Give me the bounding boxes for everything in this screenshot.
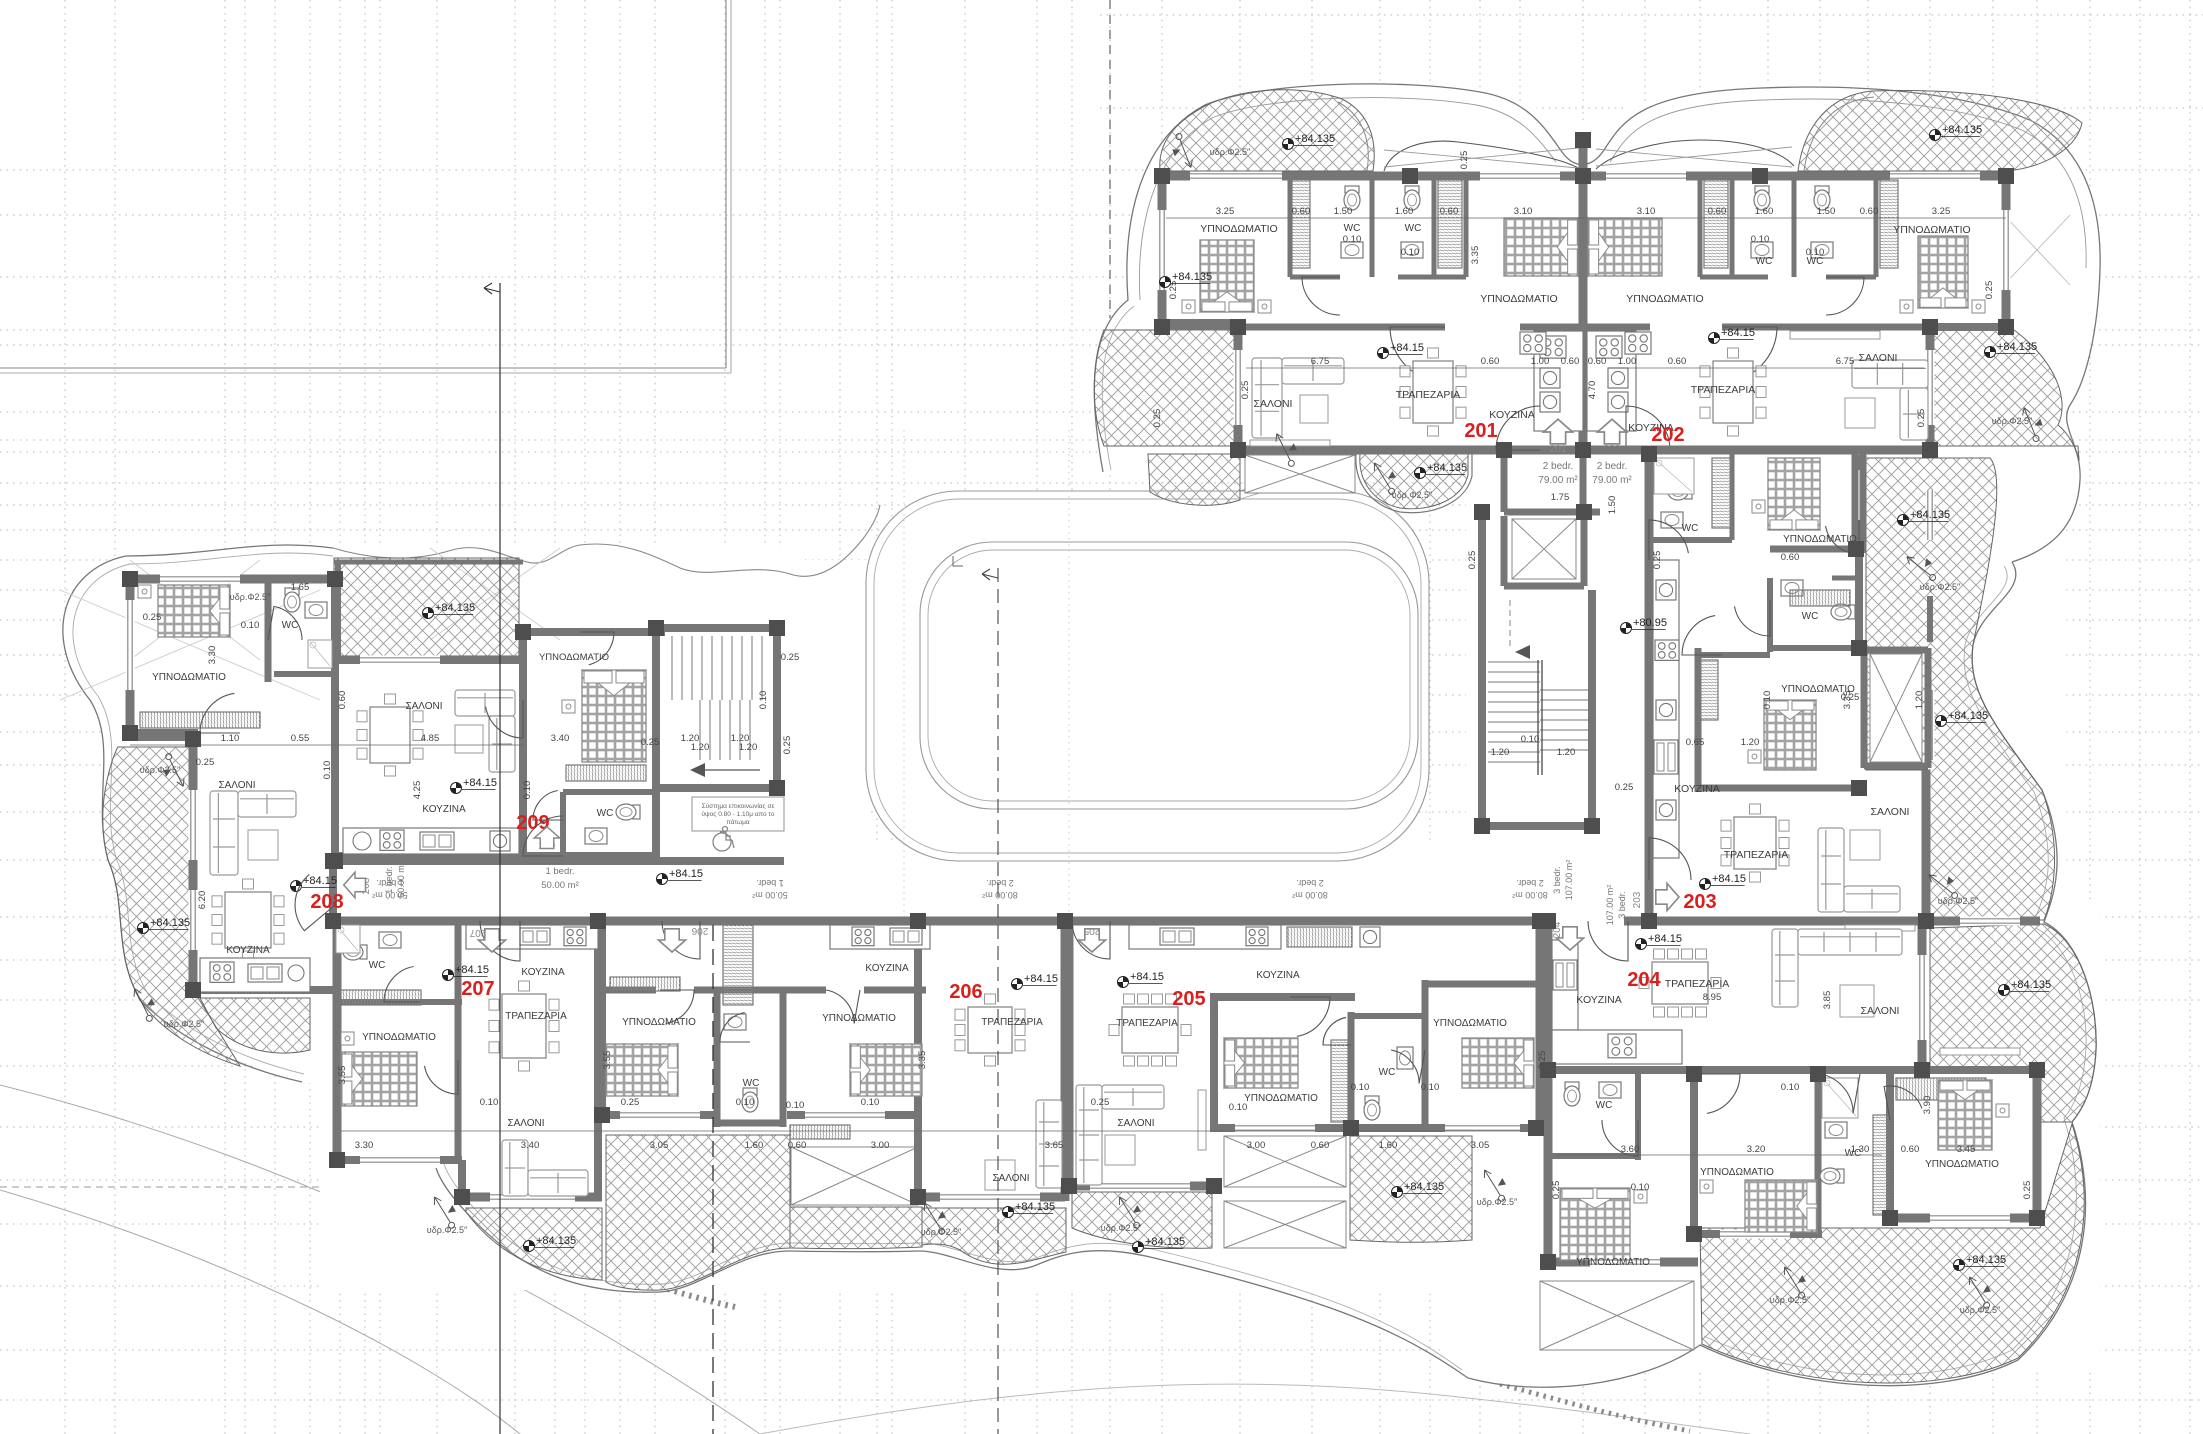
svg-text:0.25: 0.25 [1467, 551, 1478, 570]
svg-text:+84.135: +84.135 [1910, 509, 1950, 521]
svg-text:0.10: 0.10 [1343, 234, 1362, 245]
svg-text:0.65: 0.65 [1686, 737, 1705, 748]
svg-text:0.60: 0.60 [1481, 356, 1500, 367]
svg-text:+84.135: +84.135 [1295, 133, 1335, 145]
svg-text:+84.15: +84.15 [303, 875, 337, 887]
svg-text:0.25: 0.25 [641, 737, 660, 748]
svg-text:206: 206 [949, 981, 982, 1003]
svg-text:0.10: 0.10 [1351, 1082, 1370, 1093]
svg-text:207: 207 [469, 927, 486, 938]
svg-text:ΣΑΛΟΝΙ: ΣΑΛΟΝΙ [1254, 398, 1293, 410]
svg-text:+84.15: +84.15 [1130, 971, 1164, 983]
svg-text:3.40: 3.40 [551, 733, 570, 744]
svg-text:+84.135: +84.135 [536, 1235, 576, 1247]
svg-text:0.25: 0.25 [781, 652, 800, 663]
svg-text:+84.135: +84.135 [1427, 462, 1467, 474]
svg-text:Σύστημα επικοινωνίας σε: Σύστημα επικοινωνίας σε [702, 802, 775, 810]
svg-text:ΚΟΥΖΙΝΑ: ΚΟΥΖΙΝΑ [521, 967, 565, 978]
svg-text:WC: WC [1596, 1100, 1613, 1111]
svg-text:ΚΟΥΖΙΝΑ: ΚΟΥΖΙΝΑ [865, 963, 909, 974]
svg-text:0.25: 0.25 [1091, 1097, 1110, 1108]
svg-text:0.60: 0.60 [1860, 206, 1879, 217]
svg-text:3.30: 3.30 [207, 646, 218, 665]
svg-text:1 bedr.: 1 bedr. [384, 866, 394, 894]
svg-text:207: 207 [461, 978, 494, 1000]
svg-text:3.10: 3.10 [1637, 206, 1656, 217]
svg-text:ΣΑΛΟΝΙ: ΣΑΛΟΝΙ [218, 780, 255, 791]
svg-text:+84.135: +84.135 [2011, 979, 2051, 991]
svg-text:0.60: 0.60 [1588, 356, 1607, 367]
svg-text:3.45: 3.45 [1957, 1144, 1976, 1155]
svg-text:3.00: 3.00 [871, 1140, 890, 1151]
svg-text:1 bedr.: 1 bedr. [756, 878, 784, 888]
svg-text:+84.15: +84.15 [669, 868, 703, 880]
svg-text:1.50: 1.50 [1817, 206, 1836, 217]
svg-text:50.00 m²: 50.00 m² [541, 880, 579, 891]
svg-text:ΥΠΝΟΔΩΜΑΤΙΟ: ΥΠΝΟΔΩΜΑΤΙΟ [1480, 293, 1557, 305]
svg-text:+84.15: +84.15 [1390, 342, 1424, 354]
svg-text:80.00 m²: 80.00 m² [1292, 890, 1328, 900]
svg-text:0.10: 0.10 [1781, 1082, 1800, 1093]
svg-text:ΥΠΝΟΔΩΜΑΤΙΟ: ΥΠΝΟΔΩΜΑΤΙΟ [1433, 1018, 1507, 1029]
svg-text:3.10: 3.10 [1514, 206, 1533, 217]
svg-text:+80.95: +80.95 [1633, 617, 1667, 629]
svg-text:0.60: 0.60 [337, 691, 348, 710]
svg-text:0.25: 0.25 [1240, 381, 1251, 400]
svg-text:υδρ.Φ2.5″: υδρ.Φ2.5″ [164, 1019, 205, 1029]
svg-text:205: 205 [1172, 988, 1205, 1010]
svg-text:0.10: 0.10 [758, 691, 769, 710]
svg-text:3.40: 3.40 [521, 1140, 540, 1151]
svg-text:ύψος 0.80 - 1.10μ απο το: ύψος 0.80 - 1.10μ απο το [701, 810, 774, 818]
svg-text:ΤΡΑΠΕΖΑΡΙΑ: ΤΡΑΠΕΖΑΡΙΑ [1665, 978, 1730, 990]
svg-text:0.10: 0.10 [736, 1097, 755, 1108]
svg-text:ΤΡΑΠΕΖΑΡΙΑ: ΤΡΑΠΕΖΑΡΙΑ [981, 1017, 1043, 1028]
svg-text:ΥΠΝΟΔΩΜΑΤΙΟ: ΥΠΝΟΔΩΜΑΤΙΟ [1783, 534, 1857, 545]
svg-text:0.60: 0.60 [788, 1140, 807, 1151]
svg-text:+84.135: +84.135 [1145, 1236, 1185, 1248]
svg-text:1.50: 1.50 [1334, 206, 1353, 217]
svg-text:WC: WC [1405, 223, 1422, 234]
svg-text:0.10: 0.10 [241, 620, 260, 631]
svg-text:υδρ.Φ2.5″: υδρ.Φ2.5″ [1938, 896, 1979, 906]
svg-text:ΚΟΥΖΙΝΑ: ΚΟΥΖΙΝΑ [1576, 994, 1621, 1006]
svg-text:0.10: 0.10 [1401, 247, 1420, 258]
svg-text:3 bedr.: 3 bedr. [1617, 891, 1627, 919]
svg-text:3.25: 3.25 [1932, 206, 1951, 217]
svg-text:υδρ.Φ2.5″: υδρ.Φ2.5″ [230, 592, 271, 602]
svg-text:1.20: 1.20 [739, 742, 758, 753]
svg-text:0.60: 0.60 [1561, 356, 1580, 367]
svg-text:ΤΡΑΠΕΖΑΡΙΑ: ΤΡΑΠΕΖΑΡΙΑ [505, 1011, 567, 1022]
svg-text:ΣΑΛΟΝΙ: ΣΑΛΟΝΙ [1861, 1005, 1900, 1017]
svg-text:0.25: 0.25 [1916, 409, 1927, 428]
svg-text:1.60: 1.60 [1379, 1140, 1398, 1151]
svg-text:0.10: 0.10 [480, 1097, 499, 1108]
svg-text:203: 203 [1632, 891, 1643, 908]
svg-text:1.75: 1.75 [1551, 492, 1570, 503]
svg-text:ΥΠΝΟΔΩΜΑΤΙΟ: ΥΠΝΟΔΩΜΑΤΙΟ [1893, 224, 1970, 236]
svg-text:υδρ.Φ2.5″: υδρ.Φ2.5″ [1920, 582, 1961, 592]
svg-text:8.95: 8.95 [1703, 992, 1722, 1003]
svg-text:0.10: 0.10 [522, 781, 533, 800]
svg-text:1.20: 1.20 [1914, 691, 1925, 710]
svg-text:+84.135: +84.135 [1966, 1254, 2006, 1266]
svg-text:ΤΡΑΠΕΖΑΡΙΑ: ΤΡΑΠΕΖΑΡΙΑ [1116, 1018, 1178, 1029]
svg-text:ΥΠΝΟΔΩΜΑΤΙΟ: ΥΠΝΟΔΩΜΑΤΙΟ [539, 652, 609, 663]
svg-text:1.00: 1.00 [1618, 356, 1637, 367]
svg-text:WC: WC [1379, 1067, 1396, 1078]
svg-text:0.25: 0.25 [621, 1097, 640, 1108]
svg-text:0.10: 0.10 [1521, 734, 1540, 745]
svg-text:WC: WC [282, 620, 299, 631]
svg-text:ΥΠΝΟΔΩΜΑΤΙΟ: ΥΠΝΟΔΩΜΑΤΙΟ [822, 1013, 896, 1024]
svg-text:1 bedr.: 1 bedr. [545, 866, 574, 877]
svg-text:3.30: 3.30 [355, 1140, 374, 1151]
svg-text:0.25: 0.25 [2022, 1181, 2033, 1200]
svg-text:υδρ.Φ2.5″: υδρ.Φ2.5″ [1992, 416, 2033, 426]
svg-text:ΥΠΝΟΔΩΜΑΤΙΟ: ΥΠΝΟΔΩΜΑΤΙΟ [362, 1032, 436, 1043]
svg-text:+84.135: +84.135 [435, 602, 475, 614]
svg-text:1.20: 1.20 [1491, 747, 1510, 758]
svg-text:0.25: 0.25 [1615, 782, 1634, 793]
svg-text:202: 202 [1651, 424, 1684, 446]
svg-text:107.00 m²: 107.00 m² [1605, 885, 1615, 926]
svg-text:WC: WC [1802, 611, 1819, 622]
svg-text:+84.135: +84.135 [1404, 1181, 1444, 1193]
svg-text:ΣΑΛΟΝΙ: ΣΑΛΟΝΙ [405, 701, 442, 712]
svg-text:+84.15: +84.15 [463, 777, 497, 789]
svg-text:+84.135: +84.135 [1997, 341, 2037, 353]
svg-text:+84.15: +84.15 [1712, 873, 1746, 885]
svg-text:1.60: 1.60 [1395, 206, 1414, 217]
svg-text:0.60: 0.60 [1311, 1140, 1330, 1151]
svg-text:0.25: 0.25 [196, 757, 215, 768]
svg-text:υδρ.Φ2.5″: υδρ.Φ2.5″ [1210, 147, 1251, 157]
svg-text:0.25: 0.25 [1841, 692, 1860, 703]
svg-text:ΚΟΥΖΙΝΑ: ΚΟΥΖΙΝΑ [226, 945, 270, 956]
svg-text:6.75: 6.75 [1311, 356, 1330, 367]
svg-text:0.60: 0.60 [1440, 206, 1459, 217]
svg-text:+84.135: +84.135 [150, 917, 190, 929]
svg-text:203: 203 [1683, 891, 1716, 913]
svg-text:WC: WC [743, 1078, 760, 1089]
svg-text:3.55: 3.55 [337, 1066, 348, 1085]
svg-text:ΥΠΝΟΔΩΜΑΤΙΟ: ΥΠΝΟΔΩΜΑΤΙΟ [1700, 1167, 1774, 1178]
svg-text:3 bedr.: 3 bedr. [1552, 866, 1562, 894]
svg-text:0.60: 0.60 [1708, 206, 1727, 217]
svg-text:6.75: 6.75 [1836, 356, 1855, 367]
svg-text:4.25: 4.25 [412, 781, 423, 800]
svg-text:79.00 m²: 79.00 m² [1592, 475, 1632, 486]
svg-text:WC: WC [1682, 523, 1699, 534]
svg-text:6.20: 6.20 [197, 891, 208, 910]
svg-text:1.20: 1.20 [1741, 737, 1760, 748]
svg-text:+84.135: +84.135 [1942, 124, 1982, 136]
svg-text:ΣΑΛΟΝΙ: ΣΑΛΟΝΙ [1871, 806, 1910, 818]
svg-text:ΥΠΝΟΔΩΜΑΤΙΟ: ΥΠΝΟΔΩΜΑΤΙΟ [1244, 1093, 1318, 1104]
svg-text:2 bedr.: 2 bedr. [1516, 878, 1544, 888]
svg-text:ΥΠΝΟΔΩΜΑΤΙΟ: ΥΠΝΟΔΩΜΑΤΙΟ [1576, 1257, 1650, 1268]
svg-text:0.25: 0.25 [1551, 1181, 1562, 1200]
svg-text:WC: WC [1756, 256, 1773, 267]
svg-text:206: 206 [691, 925, 708, 936]
svg-text:+84.135: +84.135 [1015, 1201, 1055, 1213]
svg-text:1.65: 1.65 [291, 582, 310, 593]
svg-text:3.60: 3.60 [1621, 1144, 1640, 1155]
svg-text:1.60: 1.60 [1755, 206, 1774, 217]
svg-text:3.35: 3.35 [917, 1051, 928, 1070]
svg-text:ΥΠΝΟΔΩΜΑΤΙΟ: ΥΠΝΟΔΩΜΑΤΙΟ [1626, 293, 1703, 305]
svg-text:0.25: 0.25 [143, 612, 162, 623]
svg-text:0.25: 0.25 [1984, 281, 1995, 300]
svg-text:1.00: 1.00 [1531, 356, 1550, 367]
svg-text:2 bedr.: 2 bedr. [1543, 461, 1574, 472]
svg-text:0.60: 0.60 [1901, 1144, 1920, 1155]
svg-text:0.10: 0.10 [1631, 1182, 1650, 1193]
svg-text:+84.135: +84.135 [1172, 271, 1212, 283]
svg-text:0.60: 0.60 [1292, 206, 1311, 217]
svg-text:ΥΠΝΟΔΩΜΑΤΙΟ: ΥΠΝΟΔΩΜΑΤΙΟ [1925, 1159, 1999, 1170]
svg-text:0.25: 0.25 [1152, 409, 1163, 428]
svg-text:0.25: 0.25 [782, 736, 793, 755]
svg-text:1.20: 1.20 [1557, 747, 1576, 758]
svg-text:2 bedr.: 2 bedr. [1296, 878, 1324, 888]
svg-text:WC: WC [369, 960, 386, 971]
svg-text:50.00 m²: 50.00 m² [396, 862, 406, 898]
svg-text:0.10: 0.10 [1806, 247, 1825, 258]
svg-text:ΚΟΥΖΙΝΑ: ΚΟΥΖΙΝΑ [1256, 970, 1300, 981]
svg-text:υδρ.Φ2.5″: υδρ.Φ2.5″ [1960, 1305, 2001, 1315]
svg-text:80.00 m²: 80.00 m² [982, 890, 1018, 900]
svg-text:+84.15: +84.15 [1721, 327, 1755, 339]
svg-text:4.70: 4.70 [1587, 381, 1598, 400]
svg-text:3.90: 3.90 [1922, 1096, 1933, 1115]
svg-text:1.60: 1.60 [745, 1140, 764, 1151]
svg-text:3.25: 3.25 [1216, 206, 1235, 217]
svg-text:+84.15: +84.15 [1648, 933, 1682, 945]
svg-text:ΥΠΝΟΔΩΜΑΤΙΟ: ΥΠΝΟΔΩΜΑΤΙΟ [1200, 223, 1277, 235]
svg-text:204: 204 [1627, 969, 1661, 991]
svg-text:0.10: 0.10 [1421, 1082, 1440, 1093]
svg-text:ΤΡΑΠΕΖΑΡΙΑ: ΤΡΑΠΕΖΑΡΙΑ [1396, 389, 1461, 401]
svg-text:0.60: 0.60 [1668, 356, 1687, 367]
svg-text:ΚΟΥΖΙΝΑ: ΚΟΥΖΙΝΑ [1674, 783, 1719, 795]
svg-text:1.30: 1.30 [1851, 1144, 1870, 1155]
svg-text:ΤΡΑΠΕΖΑΡΙΑ: ΤΡΑΠΕΖΑΡΙΑ [1724, 849, 1789, 861]
svg-text:80.00 m²: 80.00 m² [1512, 890, 1548, 900]
svg-text:3.05: 3.05 [1471, 1140, 1490, 1151]
svg-text:205: 205 [1083, 925, 1100, 936]
svg-text:1.20: 1.20 [691, 742, 710, 753]
svg-text:ΥΠΝΟΔΩΜΑΤΙΟ: ΥΠΝΟΔΩΜΑΤΙΟ [622, 1017, 696, 1028]
svg-text:50.00 m²: 50.00 m² [752, 890, 788, 900]
svg-text:0.10: 0.10 [1751, 234, 1770, 245]
svg-text:ΚΟΥΖΙΝΑ: ΚΟΥΖΙΝΑ [422, 804, 466, 815]
svg-text:0.25: 0.25 [1459, 151, 1470, 170]
svg-text:0.10: 0.10 [1762, 691, 1773, 710]
svg-text:ΣΑΛΟΝΙ: ΣΑΛΟΝΙ [1859, 352, 1898, 364]
svg-text:0.10: 0.10 [786, 1100, 805, 1111]
svg-text:0.55: 0.55 [291, 733, 310, 744]
svg-text:107.00 m²: 107.00 m² [1564, 860, 1574, 901]
svg-text:3.65: 3.65 [1045, 1140, 1064, 1151]
svg-text:1.10: 1.10 [221, 733, 240, 744]
svg-text:πάτωμα: πάτωμα [726, 818, 749, 826]
svg-text:ΣΑΛΟΝΙ: ΣΑΛΟΝΙ [1117, 1118, 1154, 1129]
svg-text:201: 201 [1464, 420, 1497, 442]
svg-text:3.85: 3.85 [1822, 991, 1833, 1010]
svg-text:0.10: 0.10 [322, 761, 333, 780]
svg-text:ΤΡΑΠΕΖΑΡΙΑ: ΤΡΑΠΕΖΑΡΙΑ [1691, 384, 1756, 396]
svg-text:3.55: 3.55 [602, 1051, 613, 1070]
svg-text:υδρ.Φ2.5″: υδρ.Φ2.5″ [427, 1225, 468, 1235]
svg-text:0.60: 0.60 [1781, 552, 1800, 563]
svg-text:υδρ.Φ2.5″: υδρ.Φ2.5″ [1392, 490, 1433, 500]
svg-text:3.05: 3.05 [650, 1140, 669, 1151]
svg-text:3.00: 3.00 [1247, 1140, 1266, 1151]
svg-text:79.00 m²: 79.00 m² [1538, 475, 1578, 486]
svg-text:ΣΑΛΟΝΙ: ΣΑΛΟΝΙ [507, 1118, 544, 1129]
svg-text:ΥΠΝΟΔΩΜΑΤΙΟ: ΥΠΝΟΔΩΜΑΤΙΟ [152, 672, 226, 683]
svg-text:+84.15: +84.15 [455, 964, 489, 976]
svg-text:201: 201 [1550, 444, 1567, 455]
svg-text:0.25: 0.25 [1652, 551, 1663, 570]
svg-text:4.85: 4.85 [421, 733, 440, 744]
svg-text:WC: WC [597, 808, 614, 819]
svg-text:+84.15: +84.15 [1024, 973, 1058, 985]
svg-text:3.35: 3.35 [1470, 246, 1481, 265]
svg-text:1.50: 1.50 [1607, 496, 1618, 515]
svg-text:0.10: 0.10 [861, 1097, 880, 1108]
svg-text:2 bedr.: 2 bedr. [986, 878, 1014, 888]
svg-text:WC: WC [1344, 223, 1361, 234]
svg-text:2 bedr.: 2 bedr. [1597, 461, 1628, 472]
svg-text:208: 208 [310, 891, 343, 913]
svg-text:0.10: 0.10 [1229, 1102, 1248, 1113]
svg-text:3.20: 3.20 [1747, 1144, 1766, 1155]
svg-text:υδρ.Φ2.5″: υδρ.Φ2.5″ [1477, 1197, 1518, 1207]
svg-text:+84.135: +84.135 [1948, 710, 1988, 722]
